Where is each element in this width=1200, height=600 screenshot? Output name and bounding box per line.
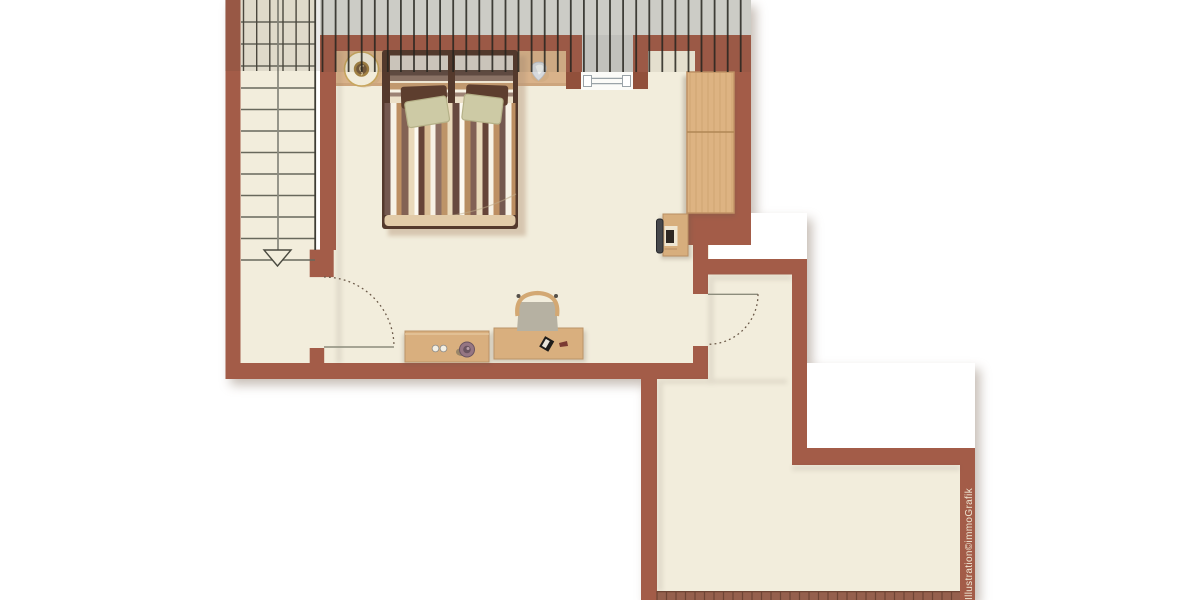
svg-text:Illustration©immoGrafik: Illustration©immoGrafik: [964, 487, 975, 600]
